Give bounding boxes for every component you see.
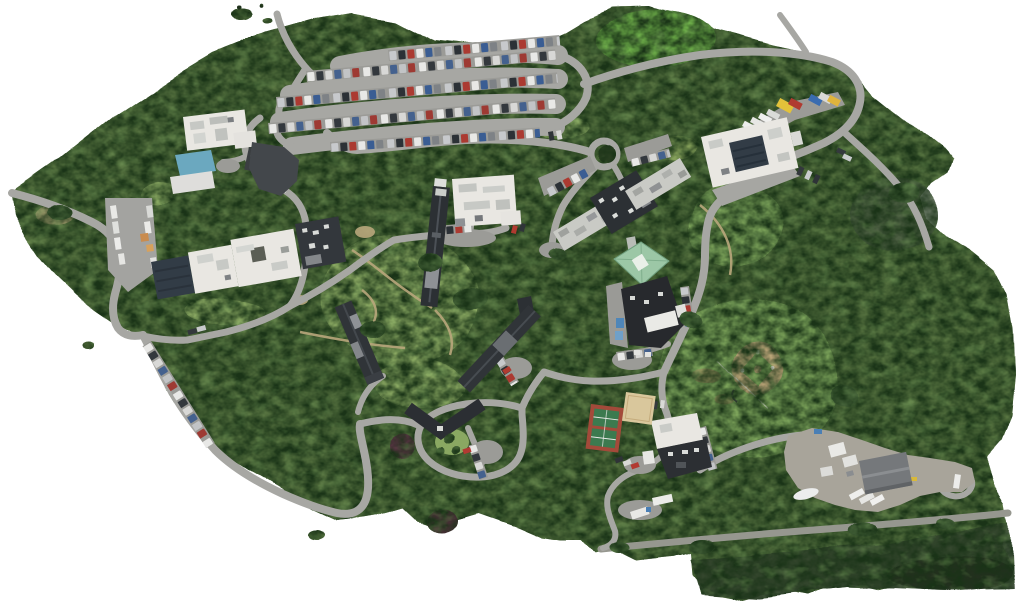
hvac <box>323 245 329 250</box>
base <box>771 364 775 368</box>
forest-clump <box>310 529 326 539</box>
dirt-patch <box>355 226 375 238</box>
blue-tent <box>615 331 623 340</box>
blue-tarp <box>814 429 822 434</box>
circle-island-tree <box>595 145 613 163</box>
base <box>739 364 743 368</box>
roof-mid <box>188 245 239 294</box>
yellow-equipment <box>911 477 917 481</box>
orthomosaic-map: Drone orthomosaic aerial view of a woode… <box>0 0 1025 607</box>
roof-wing <box>500 210 521 225</box>
roof-section <box>424 266 439 289</box>
rooftop-vent <box>432 232 441 238</box>
nw-driveway-pad <box>216 159 240 173</box>
north-annex <box>434 178 447 187</box>
canopy <box>681 310 703 326</box>
tent <box>634 350 640 355</box>
rooftop-vent <box>224 274 231 280</box>
speck <box>235 5 239 9</box>
canopy <box>548 246 566 258</box>
hvac <box>658 292 663 296</box>
canopy <box>847 525 877 539</box>
hvac <box>302 228 308 233</box>
island-bush <box>436 448 444 456</box>
rooftop-unit <box>190 121 205 131</box>
hvac <box>324 224 330 229</box>
speck <box>256 3 260 7</box>
canopy <box>831 388 859 408</box>
hvac <box>309 243 316 249</box>
outfield-worn-patch <box>691 364 719 380</box>
maroon-tree <box>428 509 456 533</box>
canopy <box>687 539 713 553</box>
maroon-tree <box>392 434 416 456</box>
west-complex-dark-hall <box>295 216 346 269</box>
rooftop-vent <box>227 117 234 123</box>
hvac <box>668 452 673 456</box>
canopy <box>356 320 384 340</box>
rooftop-vent <box>676 462 686 468</box>
rooftop-vent <box>475 215 483 222</box>
tent <box>645 352 651 357</box>
rooftop-unit <box>496 199 511 210</box>
rooftop-unit <box>216 259 230 271</box>
speck <box>245 12 250 17</box>
rooftop-vent <box>455 218 466 227</box>
annex <box>642 450 655 464</box>
container <box>146 244 154 252</box>
rooftop-unit <box>435 188 447 196</box>
base <box>755 347 759 351</box>
rooftop-unit <box>215 128 228 141</box>
forest-clump <box>261 17 271 23</box>
chevron-lawn <box>375 360 465 410</box>
rooftop-unit <box>458 183 477 192</box>
rooftop-unit <box>193 132 206 143</box>
hvac <box>630 296 635 300</box>
hvac <box>437 426 443 431</box>
hvac <box>694 448 699 452</box>
canopy <box>47 204 73 220</box>
vehicle-blue <box>646 507 651 512</box>
canopy <box>418 251 442 269</box>
canopy <box>613 540 633 552</box>
island-bush <box>442 435 452 445</box>
hvac <box>644 300 649 304</box>
tennis-court: Tennis courts <box>586 404 624 453</box>
canopy <box>889 186 921 206</box>
container <box>140 233 149 242</box>
canopy <box>934 516 954 528</box>
volleyball-court: Sand volleyball court <box>622 392 656 425</box>
pond-dark-water <box>890 557 1010 593</box>
orthomosaic-page: Drone orthomosaic aerial view of a woode… <box>0 0 1025 607</box>
canopy <box>454 288 486 312</box>
central-white-hall: Central white-roof hall <box>452 174 521 228</box>
pitchers-mound <box>753 362 761 370</box>
island-bush <box>451 448 459 456</box>
hvac <box>682 450 688 454</box>
forest-clump <box>84 344 96 352</box>
blue-tent <box>616 318 624 328</box>
